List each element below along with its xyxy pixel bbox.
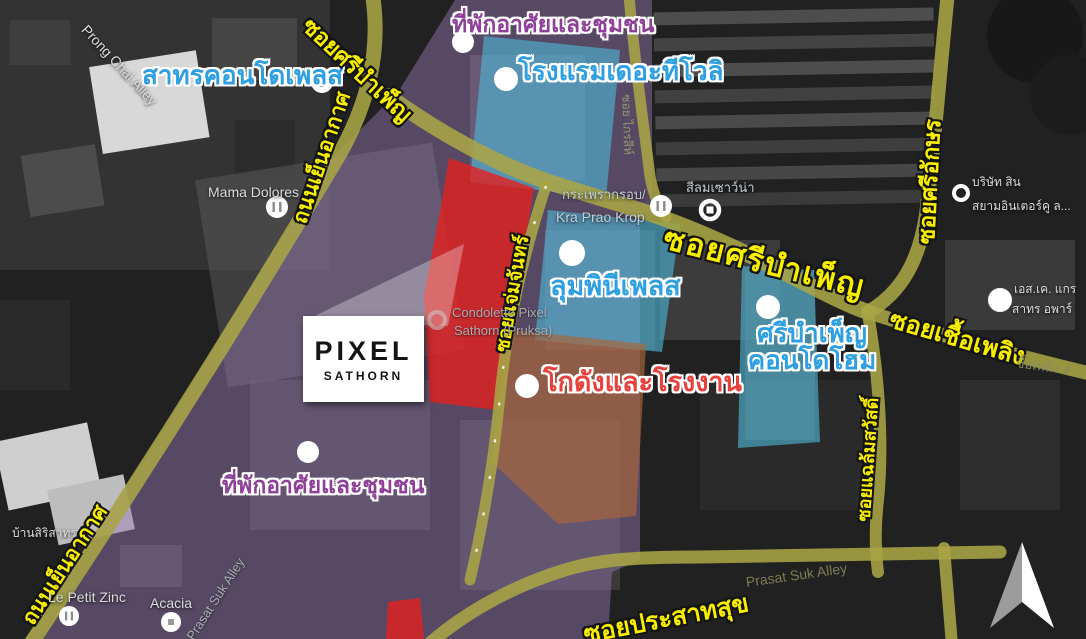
basemap-label-company-line2: สยามอินเตอร์คู ล... xyxy=(972,200,1071,213)
road-prasat-suk-south xyxy=(944,548,952,639)
restaurant-poi-icon-le-petit-zinc xyxy=(59,606,79,626)
marker-warehouse-factory xyxy=(515,374,539,398)
label-residential-community-top: ที่พักอาศัยและชุมชน xyxy=(452,12,654,36)
marker-residential-bottom xyxy=(297,441,319,463)
restaurant-poi-icon-kra-prao xyxy=(650,195,672,217)
project-location-map: PIXEL SATHORN สาทรคอนโดเพลส ที่พักอาศัยแ… xyxy=(0,0,1086,639)
basemap-label-sk-line1: เอส.เค. แกร xyxy=(1014,283,1076,296)
project-name: PIXEL xyxy=(314,336,412,367)
basemap-label-condolette-line1: Condolette Pixel xyxy=(452,306,547,320)
basemap-label-baan-siri-sathorn: บ้านสิริสาทร xyxy=(12,527,77,540)
label-sri-bamphen-condo-line1: ศรีบำเพ็ญ xyxy=(732,320,892,347)
label-tivoli-hotel: โรงแรมเดอะทีโวลิ xyxy=(518,58,723,85)
zone-project-site-south xyxy=(386,598,424,639)
label-warehouse-factory: โกดังและโรงงาน xyxy=(543,368,742,396)
basemap-label-krai-si: ซอย ไกรสีห์ xyxy=(620,94,635,155)
basemap-label-silom-sauna: สีลมเซาว์น่า xyxy=(686,181,755,195)
label-sathorn-condo-place: สาทรคอนโดเพลส xyxy=(142,62,343,89)
label-sri-bamphen-condo-home: ศรีบำเพ็ญ คอนโดโฮม xyxy=(732,320,892,375)
poi-icon-sk-sathorn-apartment xyxy=(988,288,1012,312)
basemap-label-le-petit-zinc: Le Petit Zinc xyxy=(48,590,126,605)
basemap-label-sk-line2: สาทร อพาร์ xyxy=(1012,303,1072,316)
label-lumpini-place: ลุมพินีเพลส xyxy=(550,272,681,300)
basemap-label-kra-prao-en: Kra Prao Krop xyxy=(556,210,645,225)
label-residential-community-bottom: ที่พักอาศัยและชุมชน xyxy=(222,473,424,497)
label-sri-bamphen-condo-line2: คอนโดโฮม xyxy=(732,347,892,374)
marker-sri-bamphen-condo xyxy=(756,295,780,319)
marker-lumpini-place xyxy=(559,240,585,266)
marker-tivoli-hotel xyxy=(494,67,518,91)
basemap-label-acacia: Acacia xyxy=(150,596,192,611)
basemap-label-condolette-line2: Sathorn (Pruksa) xyxy=(454,324,552,338)
project-subname: SATHORN xyxy=(324,369,403,383)
basemap-label-company-line1: บริษัท สิน xyxy=(972,176,1021,189)
basemap-label-mama-dolores: Mama Dolores xyxy=(208,185,299,200)
poi-icon-acacia xyxy=(161,612,181,632)
basemap-label-kra-prao-thai: กระเพรากรอบ/ xyxy=(562,188,646,202)
project-logo-box: PIXEL SATHORN xyxy=(303,316,424,402)
